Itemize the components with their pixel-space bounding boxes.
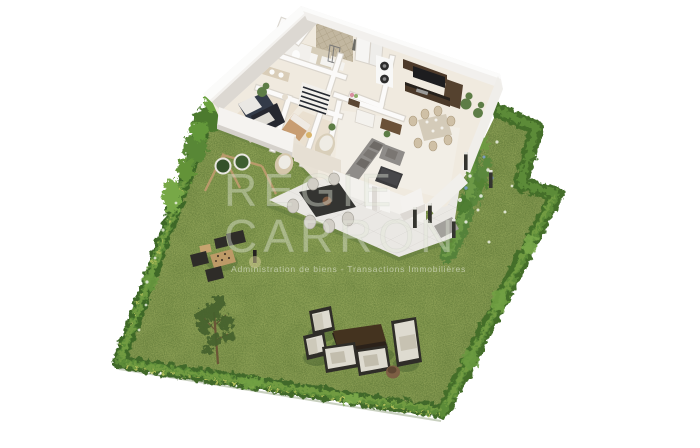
svg-text:CARRON: CARRON [224,210,459,262]
svg-text:Administration de biens -: Administration de biens - Transactions I… [231,264,466,274]
svg-text:REGIE: REGIE [224,164,397,216]
